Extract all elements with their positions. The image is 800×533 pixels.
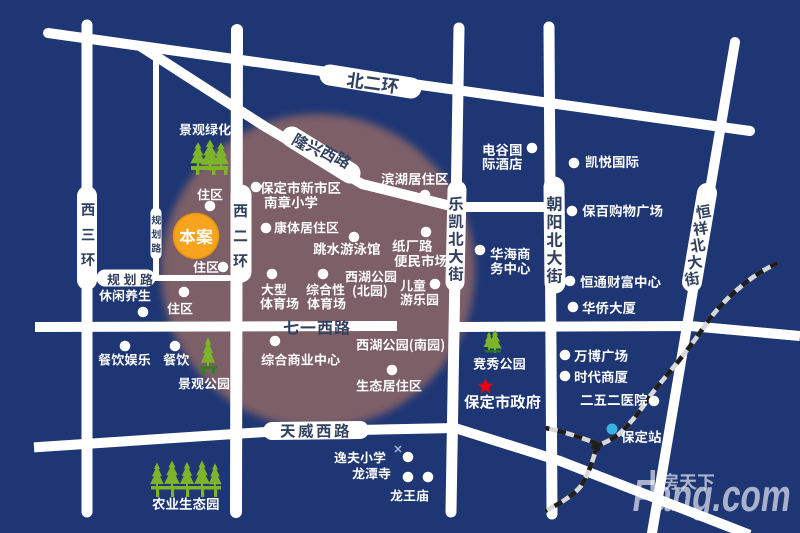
svg-text:Fang.com: Fang.com	[630, 470, 795, 521]
